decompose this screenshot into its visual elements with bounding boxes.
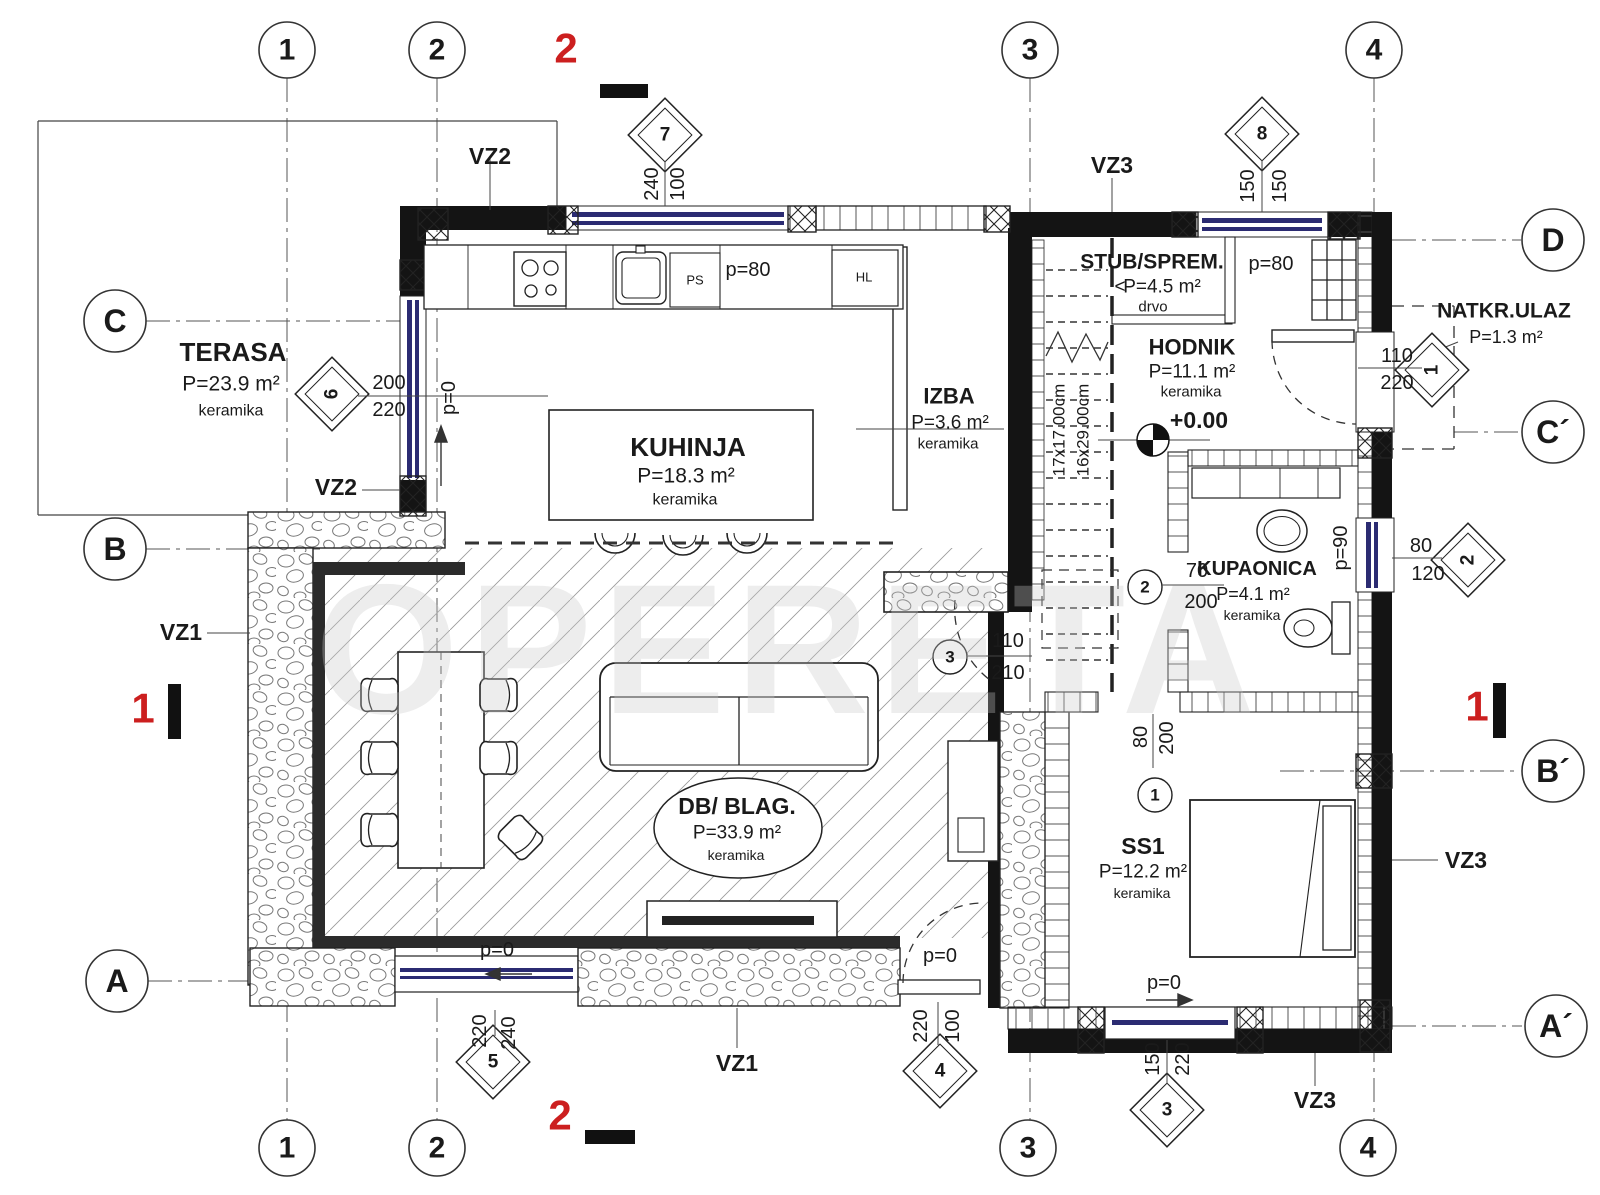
- label-dim-220-d4: 220: [910, 1009, 932, 1042]
- label-dim-220-w5: 220: [469, 1014, 491, 1047]
- label-dim-150a-w8: 150: [1237, 169, 1259, 202]
- label-vz3-top: VZ3: [1091, 152, 1133, 178]
- label-parapet-hall: p=80: [1248, 253, 1293, 275]
- label-diamond-3: 3: [1162, 1100, 1173, 1121]
- label-stairs-tread: 16x29.00cm: [1074, 384, 1093, 477]
- label-dim-150b-w8: 150: [1269, 169, 1291, 202]
- label-grid-2-top: 2: [429, 34, 446, 67]
- label-grid-B-prime: B´: [1536, 753, 1570, 789]
- label-vz2-top: VZ2: [469, 143, 511, 169]
- label-vz3-right: VZ3: [1445, 847, 1487, 873]
- bath-sink: [1257, 510, 1307, 552]
- label-ss1-floor: keramika: [1114, 885, 1171, 901]
- label-grid-A: A: [105, 963, 128, 999]
- label-section-1-right: 1: [1465, 683, 1488, 730]
- label-grid-4-bottom: 4: [1360, 1132, 1377, 1165]
- label-dim-210-d3: 210: [991, 662, 1024, 684]
- label-parapet-kwin: p=0: [438, 381, 460, 415]
- label-izba-title: IZBA: [923, 384, 974, 409]
- tv-cabinet: [948, 741, 998, 861]
- label-grid-B: B: [103, 531, 126, 567]
- label-kuhinja-area: P=18.3 m²: [637, 465, 734, 488]
- label-dim-150-w3: 150: [1142, 1042, 1164, 1075]
- label-door-mark-2: 2: [1140, 578, 1149, 597]
- label-kupaonica-floor: keramika: [1224, 607, 1281, 623]
- label-kupaonica-area: P=4.1 m²: [1216, 584, 1290, 604]
- label-vz1-left: VZ1: [160, 619, 202, 645]
- label-dim-110-w1: 110: [1381, 345, 1413, 367]
- label-diamond-6: 6: [322, 389, 343, 400]
- label-diamond-4: 4: [935, 1061, 946, 1082]
- label-unit-ps: PS: [686, 273, 704, 288]
- label-section-1-left: 1: [131, 685, 154, 732]
- label-dim-220-w3: 220: [1172, 1042, 1194, 1075]
- bed: [1190, 800, 1355, 957]
- label-natkr-title: NATKR.ULAZ: [1437, 300, 1571, 323]
- label-parapet-bath: p=90: [1330, 525, 1352, 570]
- label-dim-120-w2: 120: [1411, 563, 1444, 585]
- label-hodnik-area: P=11.1 m²: [1149, 362, 1236, 383]
- label-dim-110-d3: 110: [992, 630, 1024, 652]
- label-dim-240-w7: 240: [641, 167, 663, 200]
- label-diamond-7: 7: [660, 125, 671, 146]
- label-grid-A-prime: A´: [1539, 1008, 1573, 1044]
- label-diamond-8: 8: [1257, 124, 1268, 145]
- label-terasa-area: P=23.9 m²: [182, 373, 279, 396]
- label-hodnik-floor: keramika: [1161, 384, 1223, 401]
- stove: [514, 252, 566, 306]
- label-db-area: P=33.9 m²: [693, 823, 781, 844]
- label-watermark: OPERETA: [315, 547, 1266, 753]
- label-dim-80-w2: 80: [1410, 535, 1432, 557]
- label-kuhinja-floor: keramika: [653, 492, 718, 509]
- label-ss1-area: P=12.2 m²: [1099, 862, 1187, 883]
- label-dim-80-d1: 80: [1130, 726, 1152, 748]
- label-dim-200-d1: 200: [1156, 721, 1178, 754]
- label-izba-area: P=3.6 m²: [911, 413, 989, 434]
- label-vz1-bottom: VZ1: [716, 1050, 758, 1076]
- kitchen-counter: [424, 245, 903, 309]
- label-grid-1-bottom: 1: [279, 1132, 296, 1165]
- label-hodnik-title: HODNIK: [1149, 335, 1236, 360]
- label-section-2-bottom: 2: [548, 1092, 571, 1139]
- entry-wardrobe: [1312, 240, 1356, 320]
- label-stub-title: STUB/SPREM.: [1080, 251, 1224, 274]
- label-diamond-1: 1: [1422, 364, 1443, 375]
- label-stairs-riser: 17x17.00cm: [1050, 384, 1069, 477]
- label-diamond-5: 5: [488, 1052, 499, 1073]
- label-db-title: DB/ BLAG.: [678, 793, 796, 819]
- label-door-mark-3: 3: [945, 648, 954, 667]
- label-grid-C: C: [103, 303, 126, 339]
- label-stub-floor: drvo: [1138, 299, 1167, 316]
- label-grid-4-top: 4: [1366, 34, 1383, 67]
- floor-plan-drawing: OPERETA12341234CBADC´B´A´221178654321231…: [0, 0, 1600, 1195]
- fireplace-bench: [647, 901, 837, 937]
- label-vz2-left: VZ2: [315, 474, 357, 500]
- label-dim-100-d4: 100: [942, 1009, 964, 1042]
- label-kuhinja-title: KUHINJA: [630, 432, 746, 462]
- label-terasa-title: TERASA: [180, 337, 287, 367]
- label-grid-3-top: 3: [1022, 34, 1039, 67]
- label-ss1-title: SS1: [1121, 833, 1165, 859]
- label-dim-220-w1: 220: [1380, 372, 1413, 394]
- sink: [616, 246, 666, 304]
- label-stub-area: P=4.5 m²: [1123, 277, 1201, 298]
- label-vz3-bottom: VZ3: [1294, 1087, 1336, 1113]
- label-parapet-sw: p=0: [480, 939, 514, 961]
- label-section-2-top: 2: [554, 25, 577, 72]
- label-dim-200-d2: 200: [1184, 591, 1217, 613]
- label-izba-floor: keramika: [918, 436, 980, 453]
- label-parapet-kitchen: p=80: [725, 259, 770, 281]
- label-grid-2-bottom: 2: [429, 1132, 446, 1165]
- label-parapet-door: p=0: [923, 945, 957, 967]
- label-diamond-2: 2: [1458, 555, 1479, 566]
- label-door-mark-1: 1: [1150, 786, 1159, 805]
- label-hodnik-level: +0.00: [1170, 407, 1228, 433]
- label-dim-240-w5: 240: [498, 1016, 520, 1049]
- chair: [361, 814, 398, 847]
- label-parapet-ss1: p=0: [1147, 972, 1181, 994]
- label-db-floor: keramika: [708, 847, 765, 863]
- label-natkr-area: P=1.3 m²: [1469, 327, 1543, 347]
- label-grid-D: D: [1541, 222, 1564, 258]
- label-grid-C-prime: C´: [1536, 414, 1570, 450]
- label-unit-hl: HL: [856, 270, 873, 285]
- label-dim-100-w7: 100: [667, 167, 689, 200]
- label-dim-220-w6: 220: [372, 399, 405, 421]
- label-dim-200-w6: 200: [372, 372, 405, 394]
- label-kupaonica-title: KUPAONICA: [1197, 558, 1317, 580]
- survey-point: [1137, 424, 1169, 456]
- label-grid-1-top: 1: [279, 34, 296, 67]
- label-terasa-floor: keramika: [199, 403, 264, 420]
- label-grid-3-bottom: 3: [1020, 1132, 1037, 1165]
